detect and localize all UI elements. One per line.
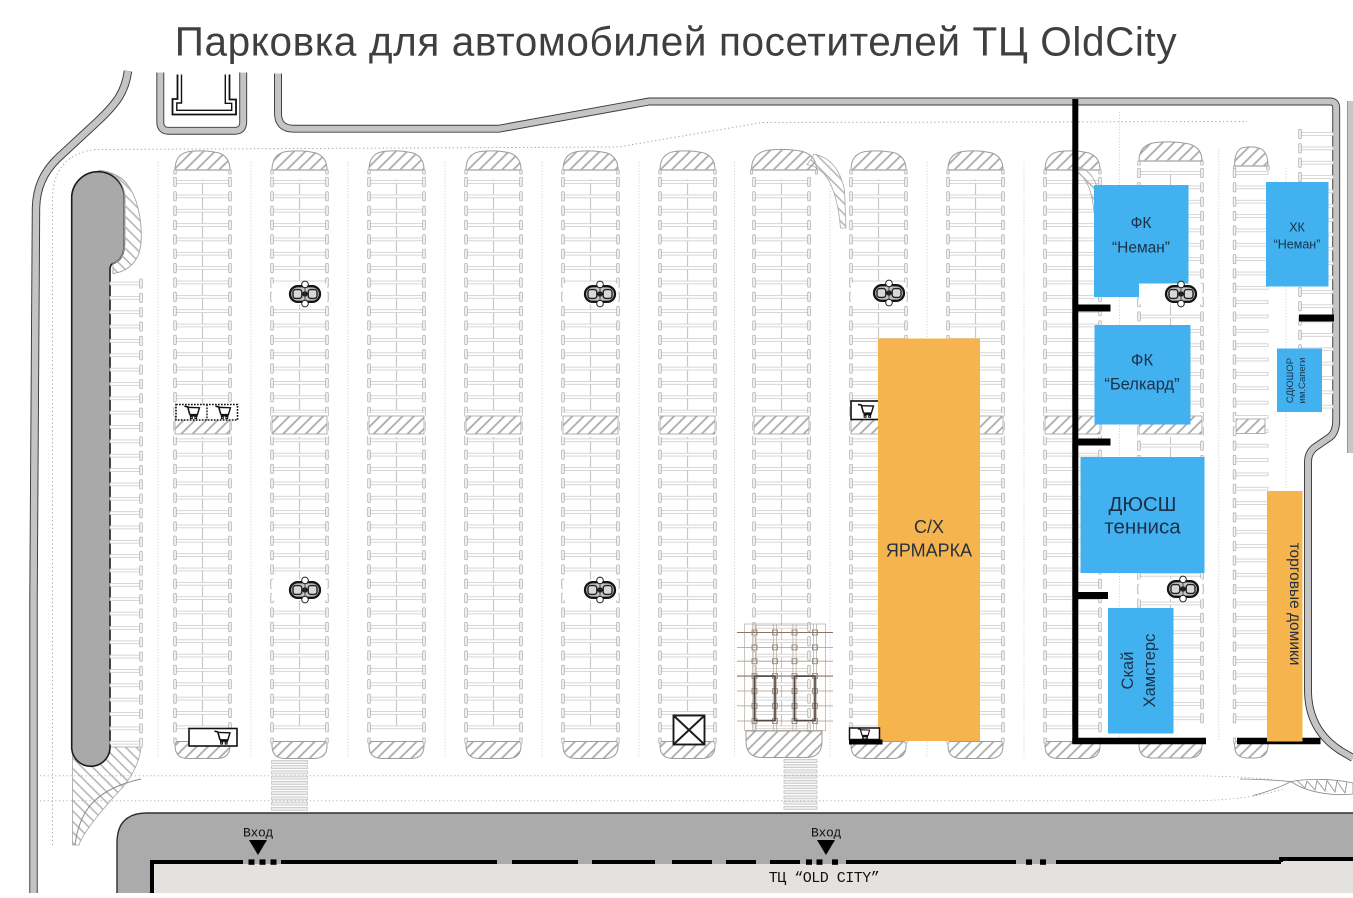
svg-text:ДЮСШ: ДЮСШ: [1109, 493, 1177, 516]
svg-text:“Белкард”: “Белкард”: [1104, 376, 1179, 394]
svg-text:ЯРМАРКА: ЯРМАРКА: [886, 541, 972, 561]
svg-text:Парковка для автомобилей посет: Парковка для автомобилей посетителей ТЦ …: [175, 19, 1178, 65]
svg-text:“Неман”: “Неман”: [1274, 238, 1321, 252]
svg-text:Вход: Вход: [243, 826, 274, 841]
svg-text:торговые домики: торговые домики: [1286, 543, 1303, 666]
svg-text:ХК: ХК: [1289, 221, 1305, 235]
svg-text:ФК: ФК: [1131, 352, 1154, 370]
svg-text:С/Х: С/Х: [914, 517, 944, 537]
svg-text:Вход: Вход: [811, 826, 842, 841]
svg-text:ФК: ФК: [1131, 215, 1152, 232]
svg-text:Скай: Скай: [1119, 652, 1137, 690]
svg-text:Хамстерс: Хамстерс: [1141, 634, 1159, 708]
svg-text:ТЦ “OLD CITY”: ТЦ “OLD CITY”: [769, 870, 880, 887]
svg-text:“Неман”: “Неман”: [1112, 240, 1170, 257]
svg-text:им.Сапеги: им.Сапеги: [1297, 358, 1308, 404]
svg-text:СДЮШОР: СДЮШОР: [1285, 358, 1296, 403]
svg-text:тенниса: тенниса: [1104, 516, 1181, 539]
